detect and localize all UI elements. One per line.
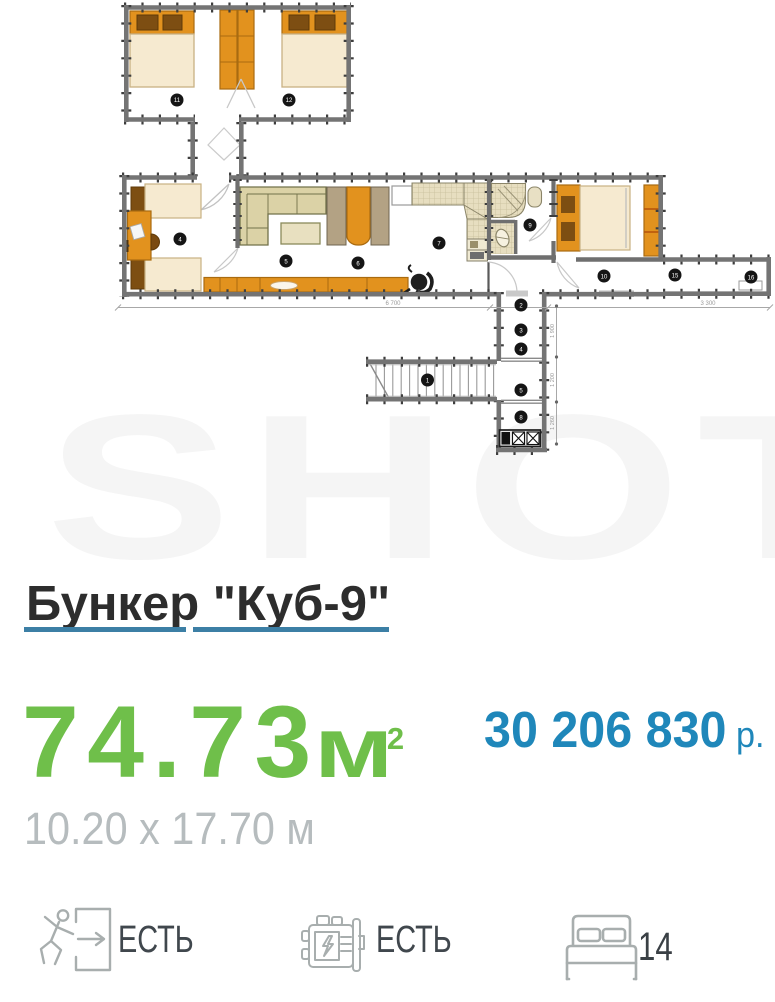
- svg-text:15: 15: [672, 274, 679, 280]
- svg-text:1 200: 1 200: [550, 373, 556, 387]
- svg-text:16: 16: [748, 276, 755, 282]
- svg-text:10: 10: [601, 275, 608, 281]
- svg-text:6 700: 6 700: [385, 301, 401, 307]
- svg-text:1 900: 1 900: [550, 324, 556, 338]
- svg-text:1 260: 1 260: [550, 416, 556, 430]
- svg-text:12: 12: [286, 98, 293, 104]
- svg-text:3 300: 3 300: [700, 301, 716, 307]
- svg-text:11: 11: [174, 98, 181, 104]
